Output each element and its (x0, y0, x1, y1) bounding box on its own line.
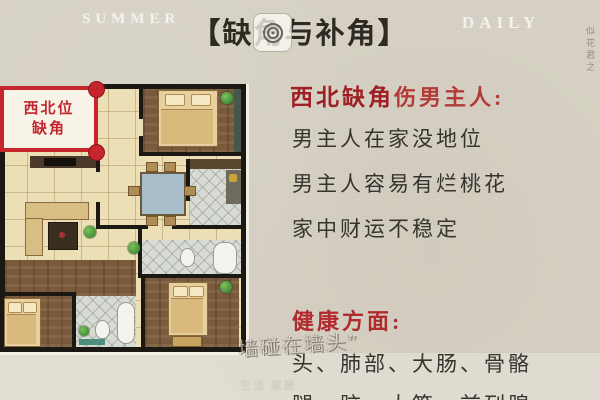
wall-mid-b (172, 225, 246, 229)
wall-bedroom-bottom (139, 152, 246, 156)
plant-icon (84, 226, 96, 238)
camera-lens-watermark-icon (253, 13, 292, 52)
toilet-right (180, 248, 195, 267)
wall-bottom (0, 347, 246, 352)
bottom-watermark: 生活 家居 (240, 377, 297, 393)
plant-icon (220, 281, 232, 293)
wall-blroom-top (0, 292, 75, 296)
text-line-2: 男主人容易有烂桃花 (292, 168, 508, 198)
heading-rest: 伤男主人: (394, 85, 504, 110)
wall-bedroom-top-a (139, 89, 143, 119)
dining-chair (146, 216, 158, 226)
plant-icon (128, 242, 140, 254)
balcony-strip (234, 89, 241, 152)
wall-blroom-right (72, 292, 76, 350)
page-title: 【缺角与补角】 (0, 10, 600, 52)
kitchen-counter (190, 159, 241, 169)
wall-right (241, 84, 246, 352)
wall-brroom-left (141, 278, 145, 350)
dining-chair (164, 162, 176, 172)
hallway-wood (5, 260, 136, 296)
plant-icon (221, 92, 233, 104)
corner-marker-dot-top (89, 82, 104, 97)
health-line-2: 腿、脑、大筋、前列腺 (292, 389, 532, 400)
dining-chair (164, 216, 176, 226)
corner-label-line2: 缺角 (32, 119, 66, 139)
side-calligraphy: 似花君之 (584, 26, 597, 74)
corner-label-line1: 西北位 (23, 99, 74, 119)
bath-shelf (79, 339, 105, 345)
wall-bath-bottom (140, 274, 246, 278)
fengshui-card: SUMMER DAILY 【缺角与补角】 似花君之 (0, 0, 600, 400)
wall-top (94, 84, 246, 89)
dining-chair (184, 186, 196, 196)
text-line-3: 家中财运不稳定 (292, 213, 460, 243)
kitchen-sink (229, 174, 237, 182)
tv (44, 158, 76, 166)
section-heading: 西北缺角伤男主人: (290, 78, 504, 112)
toilet-middle (95, 320, 110, 339)
wall-bath-left (138, 229, 142, 278)
bench (172, 336, 202, 347)
dining-table (140, 172, 186, 216)
bed-bottom-left (4, 298, 41, 347)
missing-corner-label: 西北位 缺角 (0, 86, 98, 152)
plant-icon (79, 326, 89, 336)
sofa-side (25, 218, 43, 256)
heading-strong: 西北缺角 (290, 85, 394, 110)
coffee-table (48, 222, 78, 250)
dining-chair (128, 186, 140, 196)
corner-marker-dot-bottom (89, 145, 104, 160)
dining-chair (146, 162, 158, 172)
wall-living-b (96, 202, 100, 229)
bathtub-right (213, 242, 237, 274)
floor-plan: 西北位 缺角 (0, 84, 246, 352)
bathtub-middle (117, 302, 135, 344)
text-line-1: 男主人在家没地位 (292, 123, 484, 153)
bed-top (158, 90, 218, 147)
bed-bottom-right (168, 282, 208, 336)
